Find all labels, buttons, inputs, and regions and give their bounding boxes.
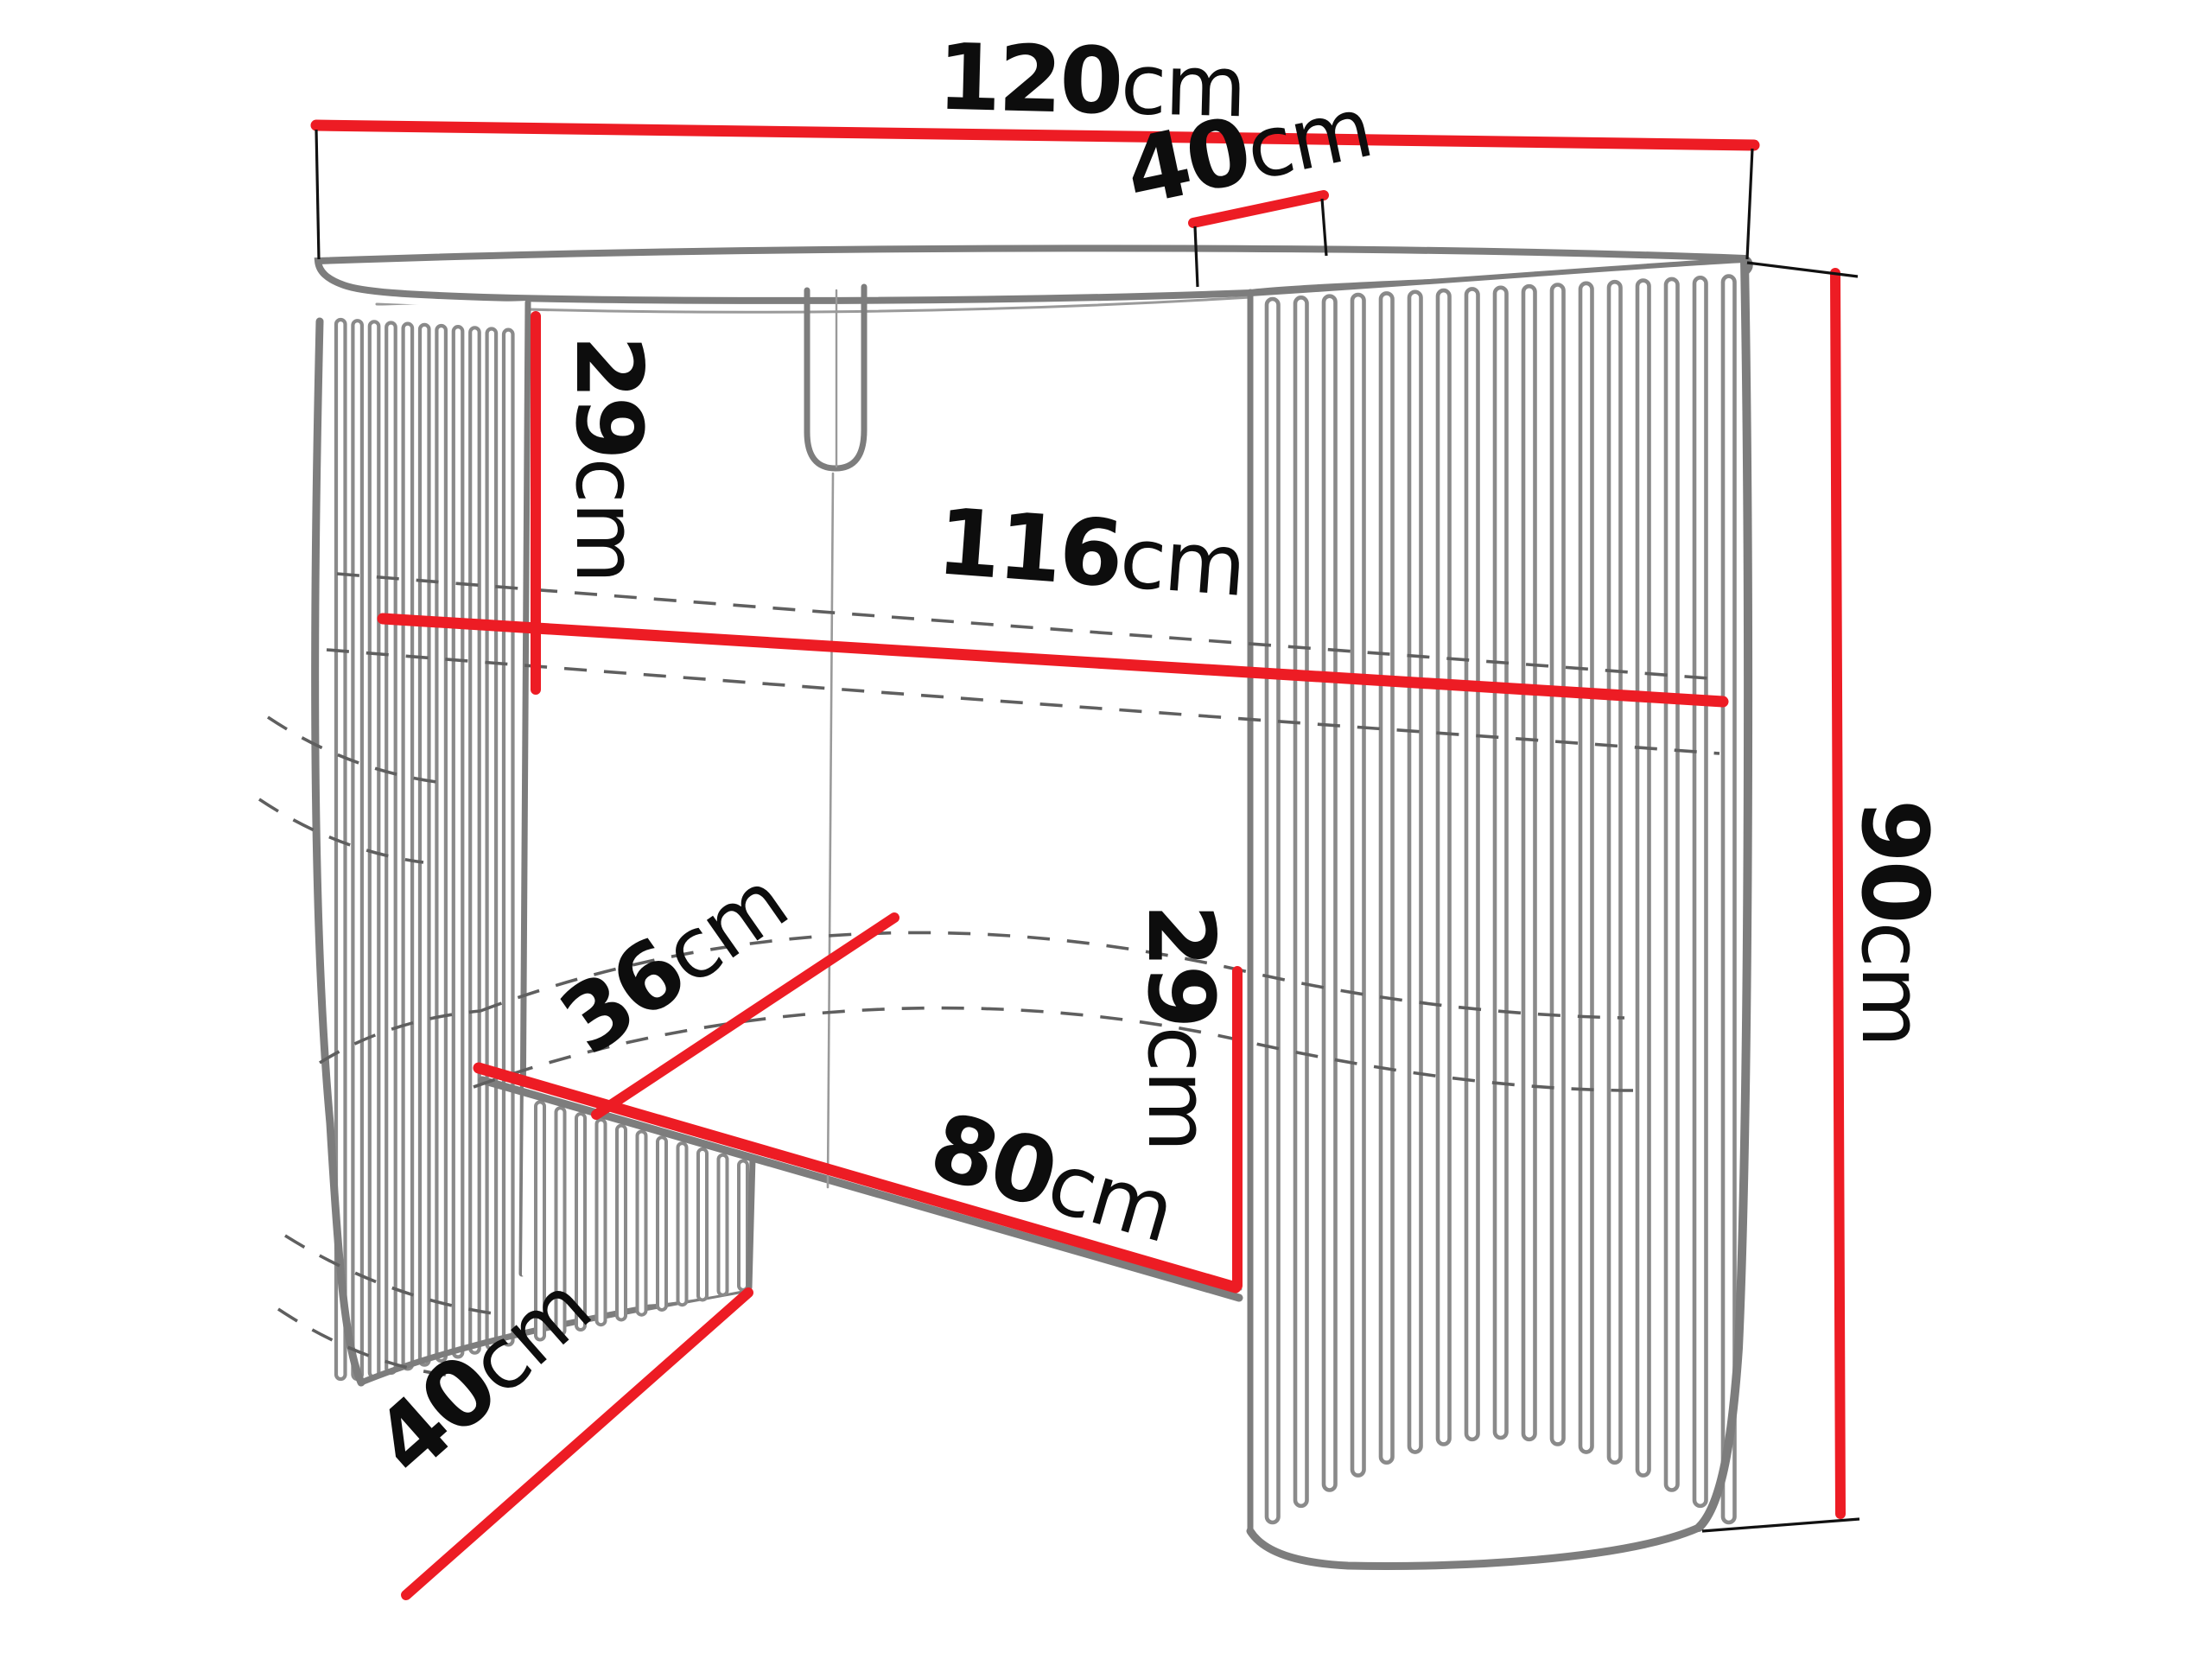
slat	[436, 326, 446, 1361]
slat	[1666, 279, 1678, 1491]
dimension-diagram-page: 120cm 40cm 29cm 116cm 90cm 36cm 80cm 29c…	[0, 0, 2212, 1659]
slat	[1523, 286, 1535, 1440]
label-depth-lower: 36cm	[542, 847, 804, 1075]
door-seam	[828, 474, 833, 1187]
slat	[454, 327, 463, 1357]
dimension-line-height-total	[1835, 273, 1840, 1514]
slat	[678, 1143, 687, 1305]
slat	[386, 322, 396, 1373]
slat	[353, 321, 362, 1379]
slat	[1495, 288, 1507, 1438]
slat	[1438, 290, 1450, 1444]
label-height-upper: 29cm	[556, 335, 662, 582]
slat	[698, 1149, 707, 1300]
slat	[617, 1126, 626, 1320]
slat	[1723, 276, 1735, 1522]
furniture-dimension-diagram: 120cm 40cm 29cm 116cm 90cm 36cm 80cm 29c…	[0, 0, 2212, 1659]
slat	[1694, 277, 1707, 1506]
slat	[1580, 283, 1592, 1452]
slat	[404, 324, 413, 1370]
slat	[638, 1131, 646, 1314]
slat	[1409, 292, 1421, 1452]
label-height-total: 90cm	[1841, 799, 1948, 1046]
slat	[1324, 296, 1336, 1491]
slat	[1552, 285, 1564, 1445]
slat	[1352, 295, 1364, 1476]
left-panel-slats	[336, 320, 513, 1379]
lower-arch-right-cut	[749, 1158, 753, 1287]
label-height-lower: 29cm	[1128, 904, 1234, 1150]
slat	[1295, 297, 1307, 1506]
slat	[597, 1120, 606, 1325]
slat	[370, 321, 379, 1376]
slat	[1267, 299, 1279, 1522]
slat	[504, 330, 513, 1345]
slat	[658, 1137, 666, 1310]
slat	[739, 1161, 747, 1290]
slat	[420, 325, 429, 1365]
slat	[470, 327, 480, 1352]
slat	[1609, 282, 1621, 1463]
slat	[1381, 293, 1393, 1462]
label-width-inner: 116cm	[934, 488, 1249, 617]
slat	[1466, 289, 1478, 1439]
slat	[1637, 281, 1649, 1476]
slat	[487, 328, 497, 1349]
right-panel-slats	[1267, 276, 1735, 1522]
slat	[719, 1155, 728, 1295]
